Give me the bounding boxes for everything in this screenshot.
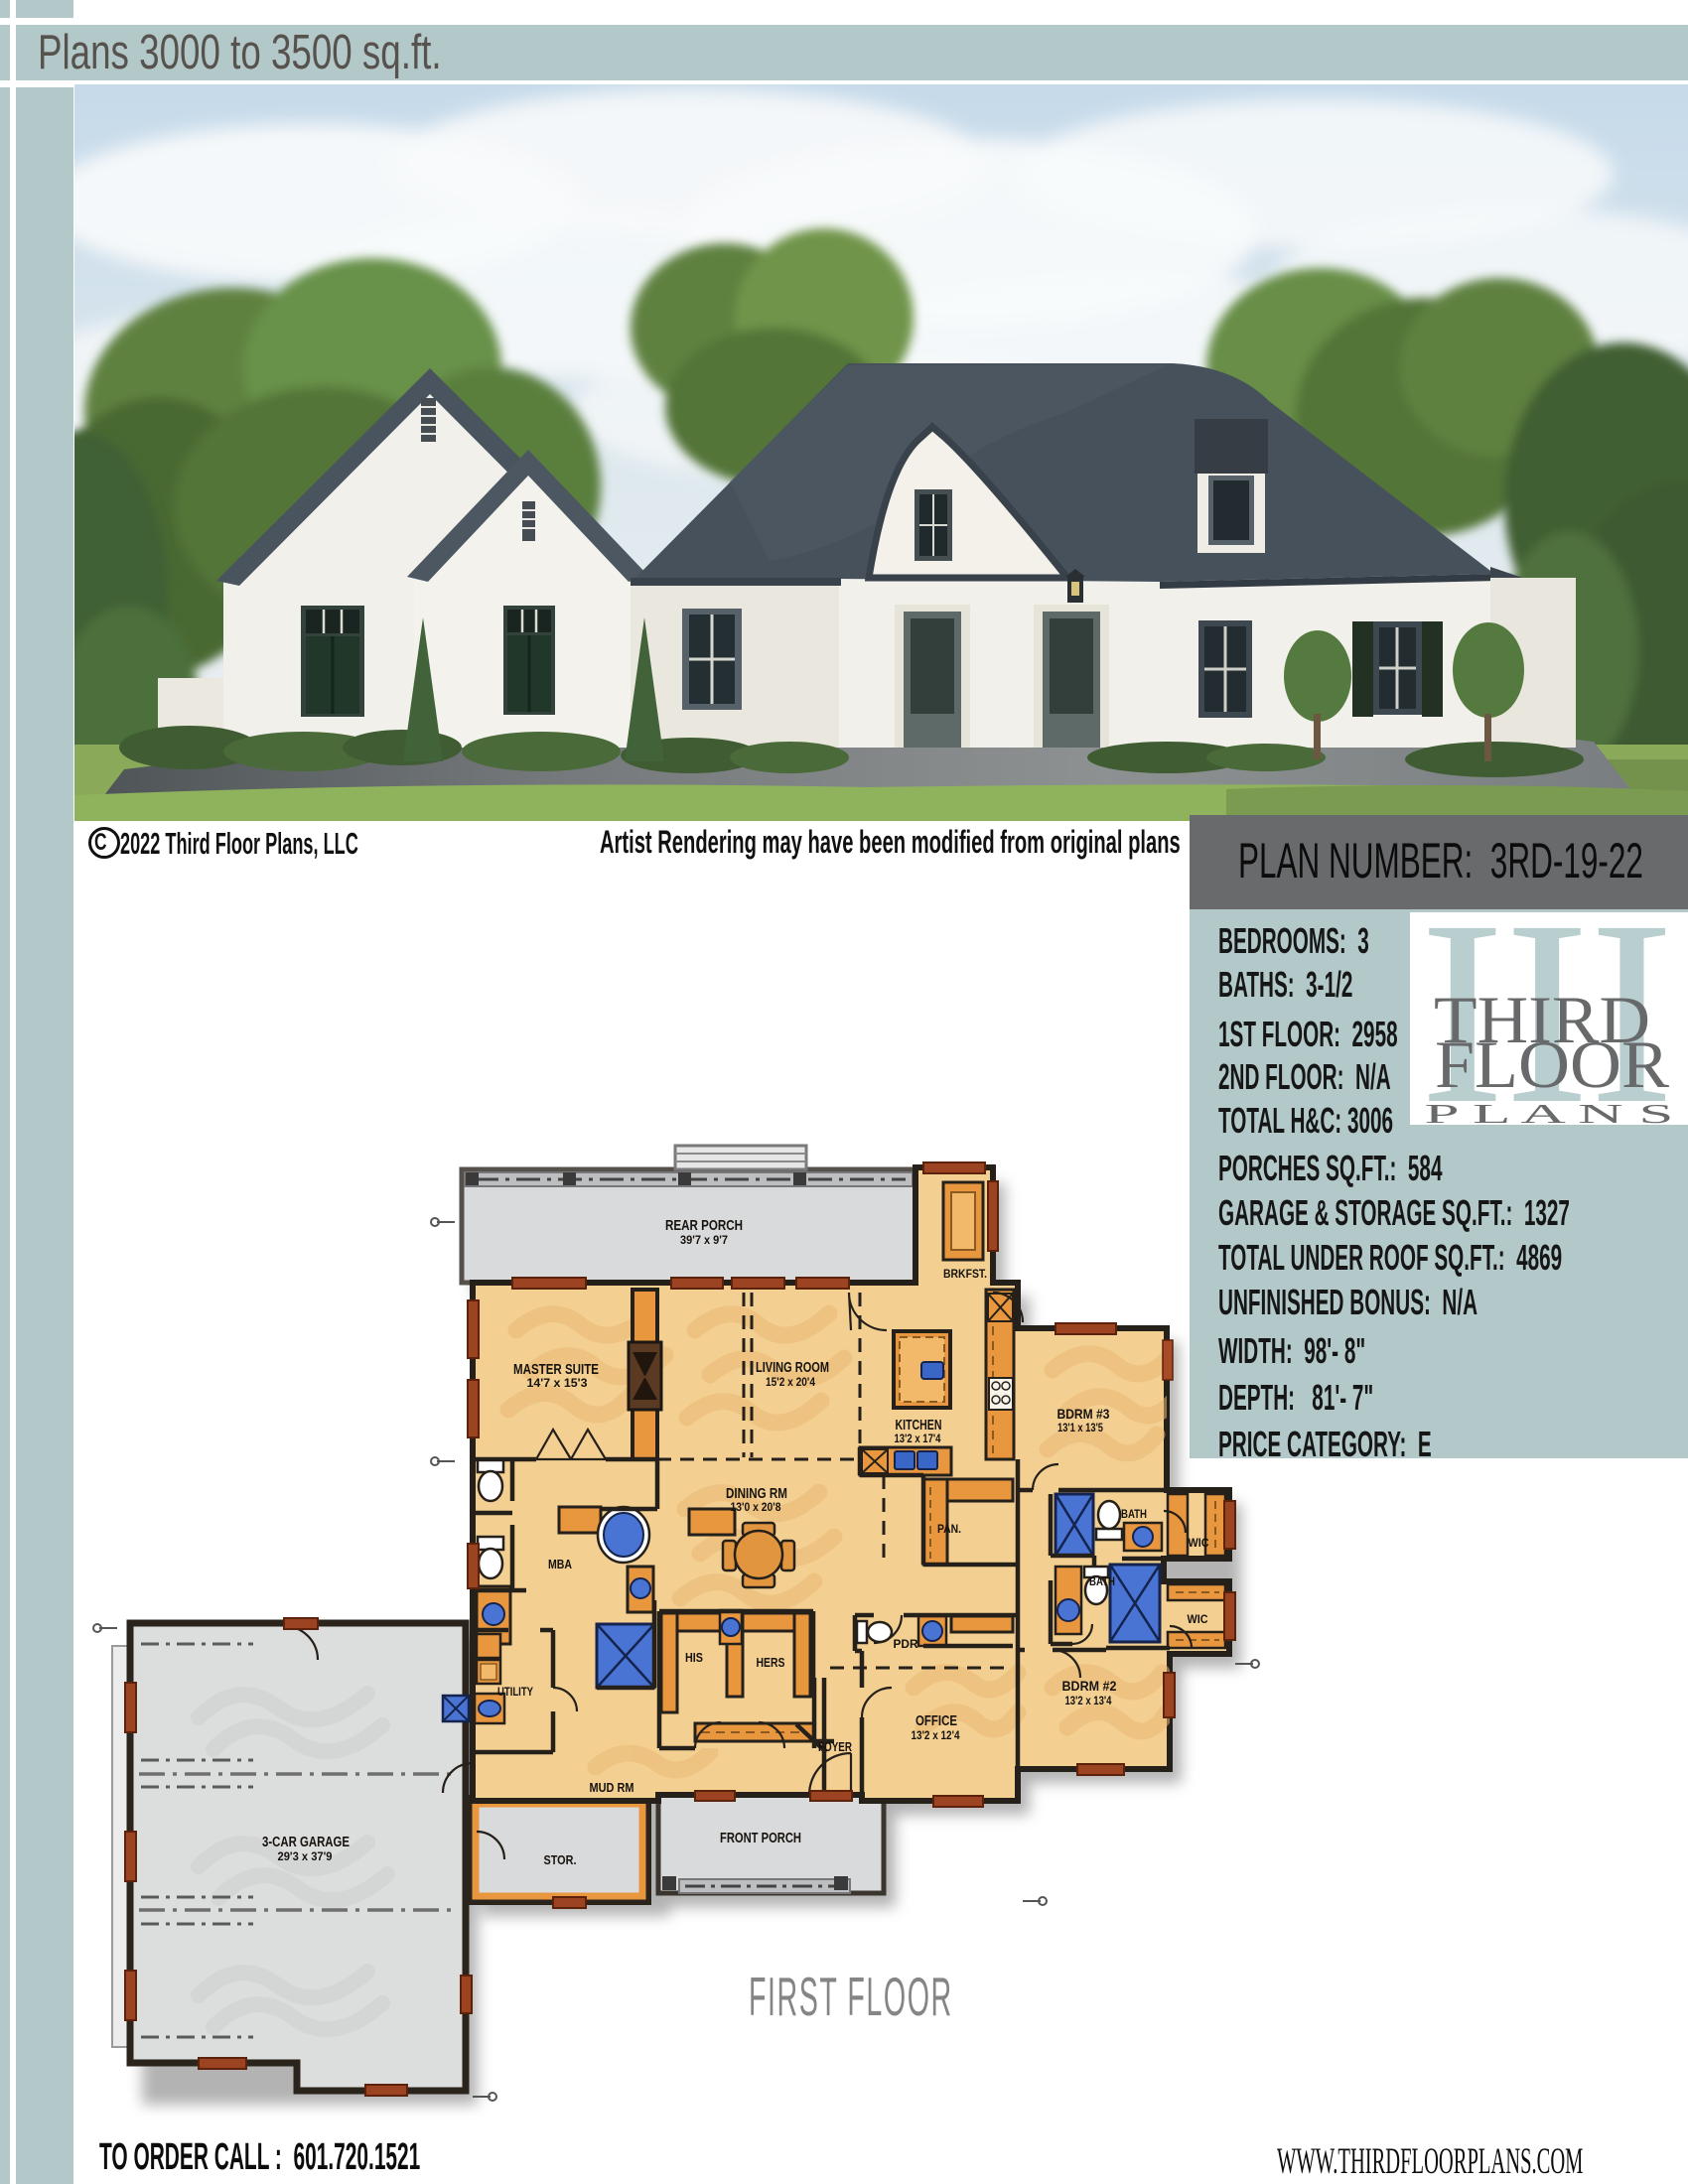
svg-text:WIC: WIC [1188, 1612, 1208, 1626]
svg-text:PDR: PDR [894, 1637, 918, 1651]
svg-text:FOYER: FOYER [818, 1740, 852, 1754]
svg-text:WIC: WIC [1189, 1536, 1209, 1550]
svg-text:BRKFST.: BRKFST. [943, 1267, 987, 1281]
svg-text:DINING RM: DINING RM [726, 1486, 787, 1502]
svg-text:HERS: HERS [757, 1656, 785, 1670]
svg-text:HIS: HIS [685, 1651, 703, 1665]
svg-text:14'7 x 15'3: 14'7 x 15'3 [527, 1378, 588, 1390]
svg-text:MUD RM: MUD RM [590, 1781, 634, 1795]
svg-text:BATH: BATH [1121, 1507, 1147, 1521]
svg-text:15'2 x 20'4: 15'2 x 20'4 [766, 1377, 816, 1389]
svg-text:PAN.: PAN. [937, 1522, 961, 1536]
svg-text:13'0 x 20'8: 13'0 x 20'8 [731, 1502, 782, 1514]
svg-text:OFFICE: OFFICE [915, 1713, 957, 1729]
svg-text:39'7 x 9'7: 39'7 x 9'7 [680, 1235, 728, 1247]
svg-text:BATH: BATH [1089, 1574, 1115, 1588]
svg-text:KITCHEN: KITCHEN [896, 1418, 942, 1433]
svg-text:MASTER SUITE: MASTER SUITE [513, 1362, 599, 1378]
svg-text:13'1 x 13'5: 13'1 x 13'5 [1057, 1423, 1103, 1434]
svg-text:UTILITY: UTILITY [497, 1685, 533, 1699]
svg-text:3-CAR GARAGE: 3-CAR GARAGE [262, 1835, 350, 1850]
svg-text:MBA: MBA [548, 1558, 572, 1571]
svg-text:BDRM #2: BDRM #2 [1062, 1678, 1117, 1694]
svg-text:13'2 x 12'4: 13'2 x 12'4 [912, 1730, 961, 1742]
svg-text:FRONT PORCH: FRONT PORCH [720, 1831, 801, 1846]
svg-text:13'2 x 17'4: 13'2 x 17'4 [895, 1433, 941, 1445]
svg-text:BDRM #3: BDRM #3 [1057, 1406, 1110, 1422]
svg-text:13'2 x 13'4: 13'2 x 13'4 [1065, 1696, 1112, 1707]
svg-text:29'3 x 37'9: 29'3 x 37'9 [278, 1851, 333, 1863]
svg-text:LIVING ROOM: LIVING ROOM [756, 1360, 829, 1376]
svg-text:REAR PORCH: REAR PORCH [665, 1218, 743, 1234]
svg-text:STOR.: STOR. [544, 1853, 577, 1867]
